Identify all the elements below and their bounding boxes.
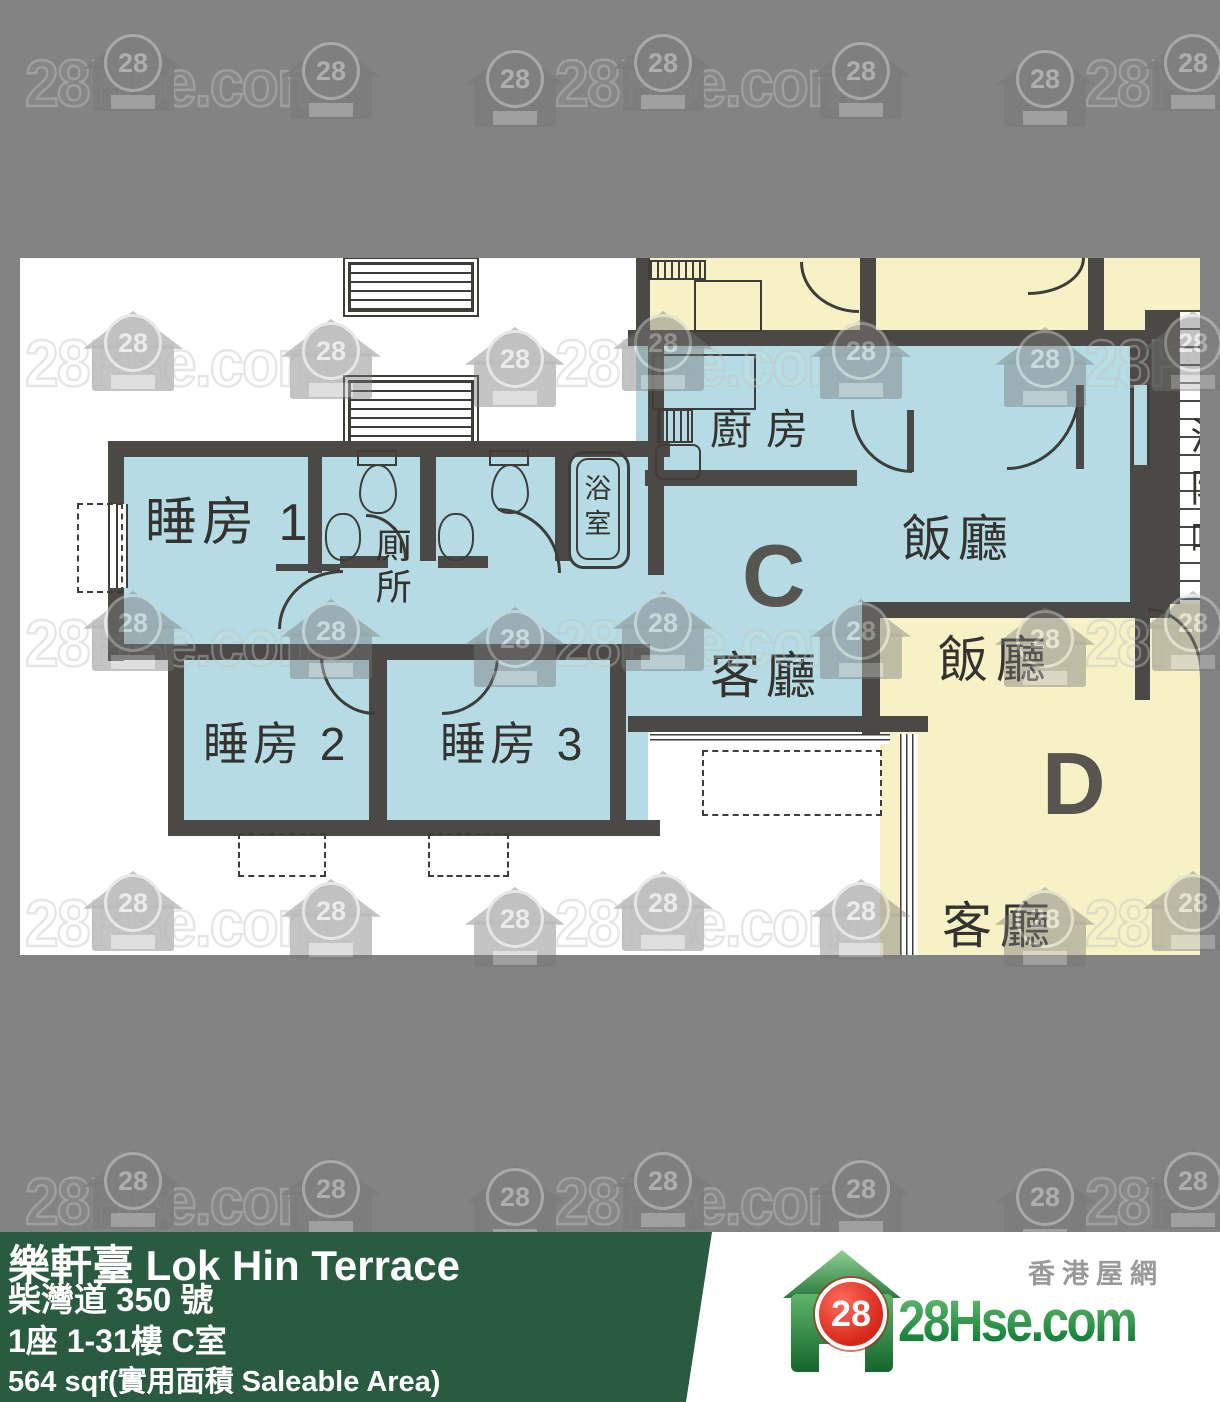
watermark-house-roof [83, 1149, 183, 1187]
estate-address: 柴灣道 350 號 [8, 1273, 213, 1321]
logo-28-badge: 28 [815, 1278, 887, 1350]
watermark-house-icon: 28 [465, 47, 565, 129]
watermark-house-icon: 28 [465, 1165, 565, 1232]
watermark-house-icon: 28 [613, 31, 713, 113]
room-label-bedroom1: 睡房 1 [145, 496, 312, 551]
watermark-house-roof [281, 39, 381, 77]
watermark-house-bod [92, 1183, 174, 1229]
kitchen-sink-icon [657, 409, 693, 443]
watermark-28-badge: 28 [486, 50, 544, 108]
wall [1088, 258, 1104, 330]
estate-area: 564 sqf(實用面積 Saleable Area) [8, 1358, 440, 1400]
watermark-house-roof [811, 1157, 911, 1195]
estate-unit-floor: 1座 1-31樓 C室 [8, 1316, 227, 1362]
watermark-house-icon: 28 [281, 1157, 381, 1232]
watermark-house-bod [1004, 1199, 1086, 1232]
wall [1145, 310, 1178, 604]
floor-plan: 消防喉 睡房 1 睡房 2 睡房 3 廁所 浴室 廚房 飯廳 C 客廳 飯廳 D… [20, 258, 1200, 955]
corridor-label: 消防喉 [1184, 416, 1200, 572]
watermark-28-badge: 28 [104, 34, 162, 92]
room-label-dining-c: 飯廳 [902, 513, 1014, 566]
watermark-house-icon: 28 [281, 39, 381, 121]
watermark-house-door [839, 103, 883, 117]
watermark-house-icon: 28 [811, 1157, 911, 1232]
watermark-house-bod [474, 1199, 556, 1232]
watermark-text: 28Hse.com [555, 1163, 859, 1232]
watermark-house-roof [83, 31, 183, 69]
corridor-top-fill [1145, 258, 1200, 310]
watermark-house-roof [995, 47, 1095, 85]
room-label-living-d: 客廳 [942, 900, 1058, 953]
watermark-house-roof [613, 1149, 713, 1187]
watermark-28-badge: 28 [634, 34, 692, 92]
window [1132, 385, 1149, 465]
kitchen-basin-icon [655, 444, 701, 480]
wall [862, 602, 880, 734]
watermark-house-bod [820, 1191, 902, 1232]
watermark-house-door [839, 1221, 883, 1232]
watermark-house-bod [290, 73, 372, 119]
watermark-house-door [111, 95, 155, 109]
watermark-house-door [641, 95, 685, 109]
watermark-house-door [309, 1221, 353, 1232]
watermark-house-roof [1143, 1149, 1220, 1187]
logo-site-name: 香港屋網 [1028, 1252, 1164, 1291]
watermark-house-icon: 28 [83, 31, 183, 113]
watermark-house-icon: 28 [1143, 31, 1220, 113]
kitchen-counter [652, 354, 756, 410]
wall [862, 602, 1170, 618]
wall [168, 644, 184, 836]
watermark-house-door [493, 111, 537, 125]
watermark-text: 28Hse.com [1085, 45, 1220, 121]
room-label-dining-d: 飯廳 [938, 634, 1054, 687]
watermark-house-roof [281, 1157, 381, 1195]
watermark-28-badge: 28 [832, 1160, 890, 1218]
dashed-bay [428, 833, 509, 877]
watermark-house-bod [290, 1191, 372, 1232]
watermark-house-bod [1152, 65, 1220, 111]
watermark-text: 28Hse.com [25, 45, 329, 121]
dashed-bay [238, 833, 326, 877]
watermark-house-bod [92, 65, 174, 111]
room-label-kitchen: 廚房 [710, 408, 822, 452]
wall [610, 644, 626, 836]
watermark-28-badge: 28 [1164, 34, 1220, 92]
unit-label-d: D [1042, 738, 1106, 830]
page-background: { "watermark": { "text": "28Hse.com", "b… [0, 0, 1220, 1402]
room-label-toilet: 廁所 [372, 526, 410, 610]
watermark-house-roof [465, 1165, 565, 1203]
watermark-house-roof [465, 47, 565, 85]
sink-icon [325, 513, 361, 561]
dashed-bay [702, 750, 882, 816]
watermark-house-bod [1004, 81, 1086, 127]
sink-icon [438, 513, 474, 561]
watermark-28-badge: 28 [104, 1152, 162, 1210]
room-label-bathroom: 浴室 [581, 474, 609, 544]
unit-label-c: C [742, 530, 806, 622]
room-label-bedroom2: 睡房 2 [203, 720, 349, 768]
watermark-house-door [1171, 95, 1215, 109]
watermark-house-door [111, 1213, 155, 1227]
watermark-text: 28Hse.com [25, 1163, 329, 1232]
watermark-house-door [1023, 111, 1067, 125]
watermark-house-bod [820, 73, 902, 119]
watermark-house-icon: 28 [613, 1149, 713, 1231]
watermark-28-badge: 28 [486, 1168, 544, 1226]
logo-brand-text: 28Hse.com [898, 1288, 1135, 1355]
room-label-living-c: 客廳 [710, 650, 822, 703]
watermark-house-icon: 28 [995, 47, 1095, 129]
watermark-text: 28Hse.com [1085, 1163, 1220, 1232]
door-leaf [276, 564, 340, 571]
counter [694, 280, 762, 332]
wall [628, 716, 928, 732]
watermark-house-bod [622, 1183, 704, 1229]
watermark-house-icon: 28 [1143, 1149, 1220, 1231]
louver-window-icon [348, 262, 474, 312]
watermark-house-icon: 28 [811, 39, 911, 121]
watermark-28-badge: 28 [302, 1160, 360, 1218]
window [900, 734, 918, 955]
watermark-house-bod [474, 81, 556, 127]
watermark-28-badge: 28 [634, 1152, 692, 1210]
watermark-house-roof [995, 1165, 1095, 1203]
watermark-house-icon: 28 [83, 1149, 183, 1231]
vent-icon [648, 260, 706, 280]
watermark-house-bod [622, 65, 704, 111]
watermark-text: 28Hse.com [555, 45, 859, 121]
wall [628, 330, 1148, 346]
watermark-house-door [309, 103, 353, 117]
room-label-bedroom3: 睡房 3 [440, 720, 586, 768]
info-bar: 樂軒臺 Lok Hin Terrace 柴灣道 350 號 1座 1-31樓 C… [0, 1232, 1220, 1402]
watermark-28-badge: 28 [832, 42, 890, 100]
watermark-28-badge: 28 [1016, 1168, 1074, 1226]
wall [420, 441, 436, 561]
watermark-house-icon: 28 [995, 1165, 1095, 1232]
watermark-28-badge: 28 [1016, 50, 1074, 108]
watermark-28-badge: 28 [1164, 1152, 1220, 1210]
watermark-house-roof [613, 31, 713, 69]
wall [860, 258, 876, 330]
watermark-28-badge: 28 [302, 42, 360, 100]
window [650, 734, 890, 744]
watermark-house-roof [1143, 31, 1220, 69]
watermark-house-door [1171, 1213, 1215, 1227]
dashed-bay [77, 503, 123, 593]
watermark-house-roof [811, 39, 911, 77]
watermark-house-door [641, 1213, 685, 1227]
watermark-house-bod [1152, 1183, 1220, 1229]
